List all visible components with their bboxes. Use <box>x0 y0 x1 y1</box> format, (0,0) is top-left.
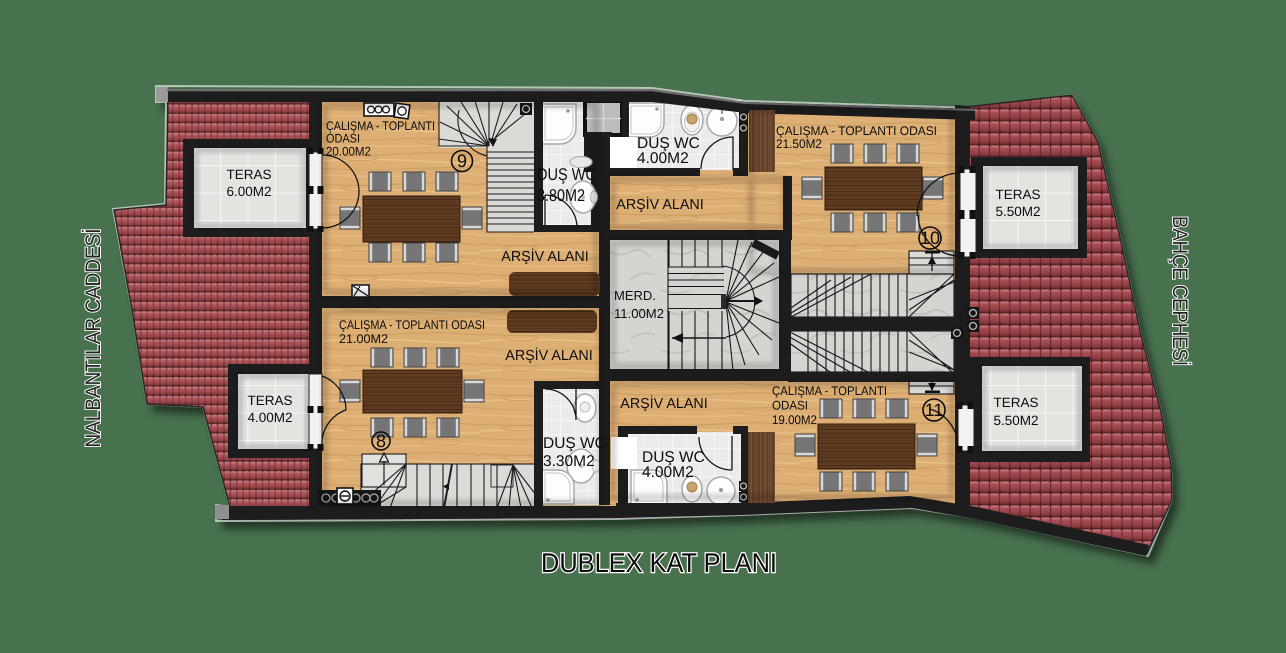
svg-text:ÇALIŞMA - TOPLANTI ODASI: ÇALIŞMA - TOPLANTI ODASI <box>339 318 485 332</box>
svg-text:8: 8 <box>376 431 386 451</box>
svg-text:DUBLEX KAT PLANI: DUBLEX KAT PLANI <box>541 548 777 578</box>
svg-text:TERAS: TERAS <box>993 395 1038 410</box>
svg-text:ÇALIŞMA - TOPLANTI ODASI: ÇALIŞMA - TOPLANTI ODASI <box>776 124 937 138</box>
svg-text:TERAS: TERAS <box>247 393 292 408</box>
svg-text:5.50M2: 5.50M2 <box>995 204 1040 219</box>
svg-text:11.00M2: 11.00M2 <box>614 306 664 321</box>
svg-text:TERAS: TERAS <box>995 187 1040 202</box>
svg-text:ARŞİV ALANI: ARŞİV ALANI <box>620 395 707 412</box>
svg-text:ÇALIŞMA - TOPLANTI: ÇALIŞMA - TOPLANTI <box>772 384 887 398</box>
svg-text:DUŞ WC: DUŞ WC <box>537 165 596 184</box>
svg-text:ARŞİV ALANI: ARŞİV ALANI <box>505 347 592 364</box>
svg-text:6.00M2: 6.00M2 <box>226 184 271 199</box>
svg-text:21.50M2: 21.50M2 <box>776 137 822 151</box>
svg-text:TERAS: TERAS <box>226 167 271 182</box>
svg-text:4.00M2: 4.00M2 <box>642 464 694 481</box>
svg-text:9: 9 <box>457 151 467 171</box>
svg-text:MERD.: MERD. <box>614 288 656 303</box>
svg-text:11: 11 <box>925 400 944 420</box>
svg-text:ODASI: ODASI <box>772 399 808 413</box>
svg-text:21.00M2: 21.00M2 <box>339 332 388 346</box>
svg-text:NALBANTILAR CADDESİ: NALBANTILAR CADDESİ <box>81 229 105 448</box>
svg-text:BAHÇE CEPHESİ: BAHÇE CEPHESİ <box>1168 216 1192 366</box>
svg-text:20.00M2: 20.00M2 <box>326 145 371 159</box>
svg-text:DUŞ WC: DUŞ WC <box>543 435 606 452</box>
svg-text:19.00M2: 19.00M2 <box>772 413 817 427</box>
svg-text:3.30M2: 3.30M2 <box>543 453 595 470</box>
svg-text:ARŞİV ALANI: ARŞİV ALANI <box>501 248 588 265</box>
svg-text:3.80M2: 3.80M2 <box>537 186 585 205</box>
svg-text:10: 10 <box>920 228 940 248</box>
svg-text:4.00M2: 4.00M2 <box>247 410 292 425</box>
svg-text:ARŞİV ALANI: ARŞİV ALANI <box>616 196 703 213</box>
svg-text:4.00M2: 4.00M2 <box>637 150 689 167</box>
svg-text:5.50M2: 5.50M2 <box>993 413 1038 428</box>
svg-text:ODASI: ODASI <box>326 132 360 146</box>
